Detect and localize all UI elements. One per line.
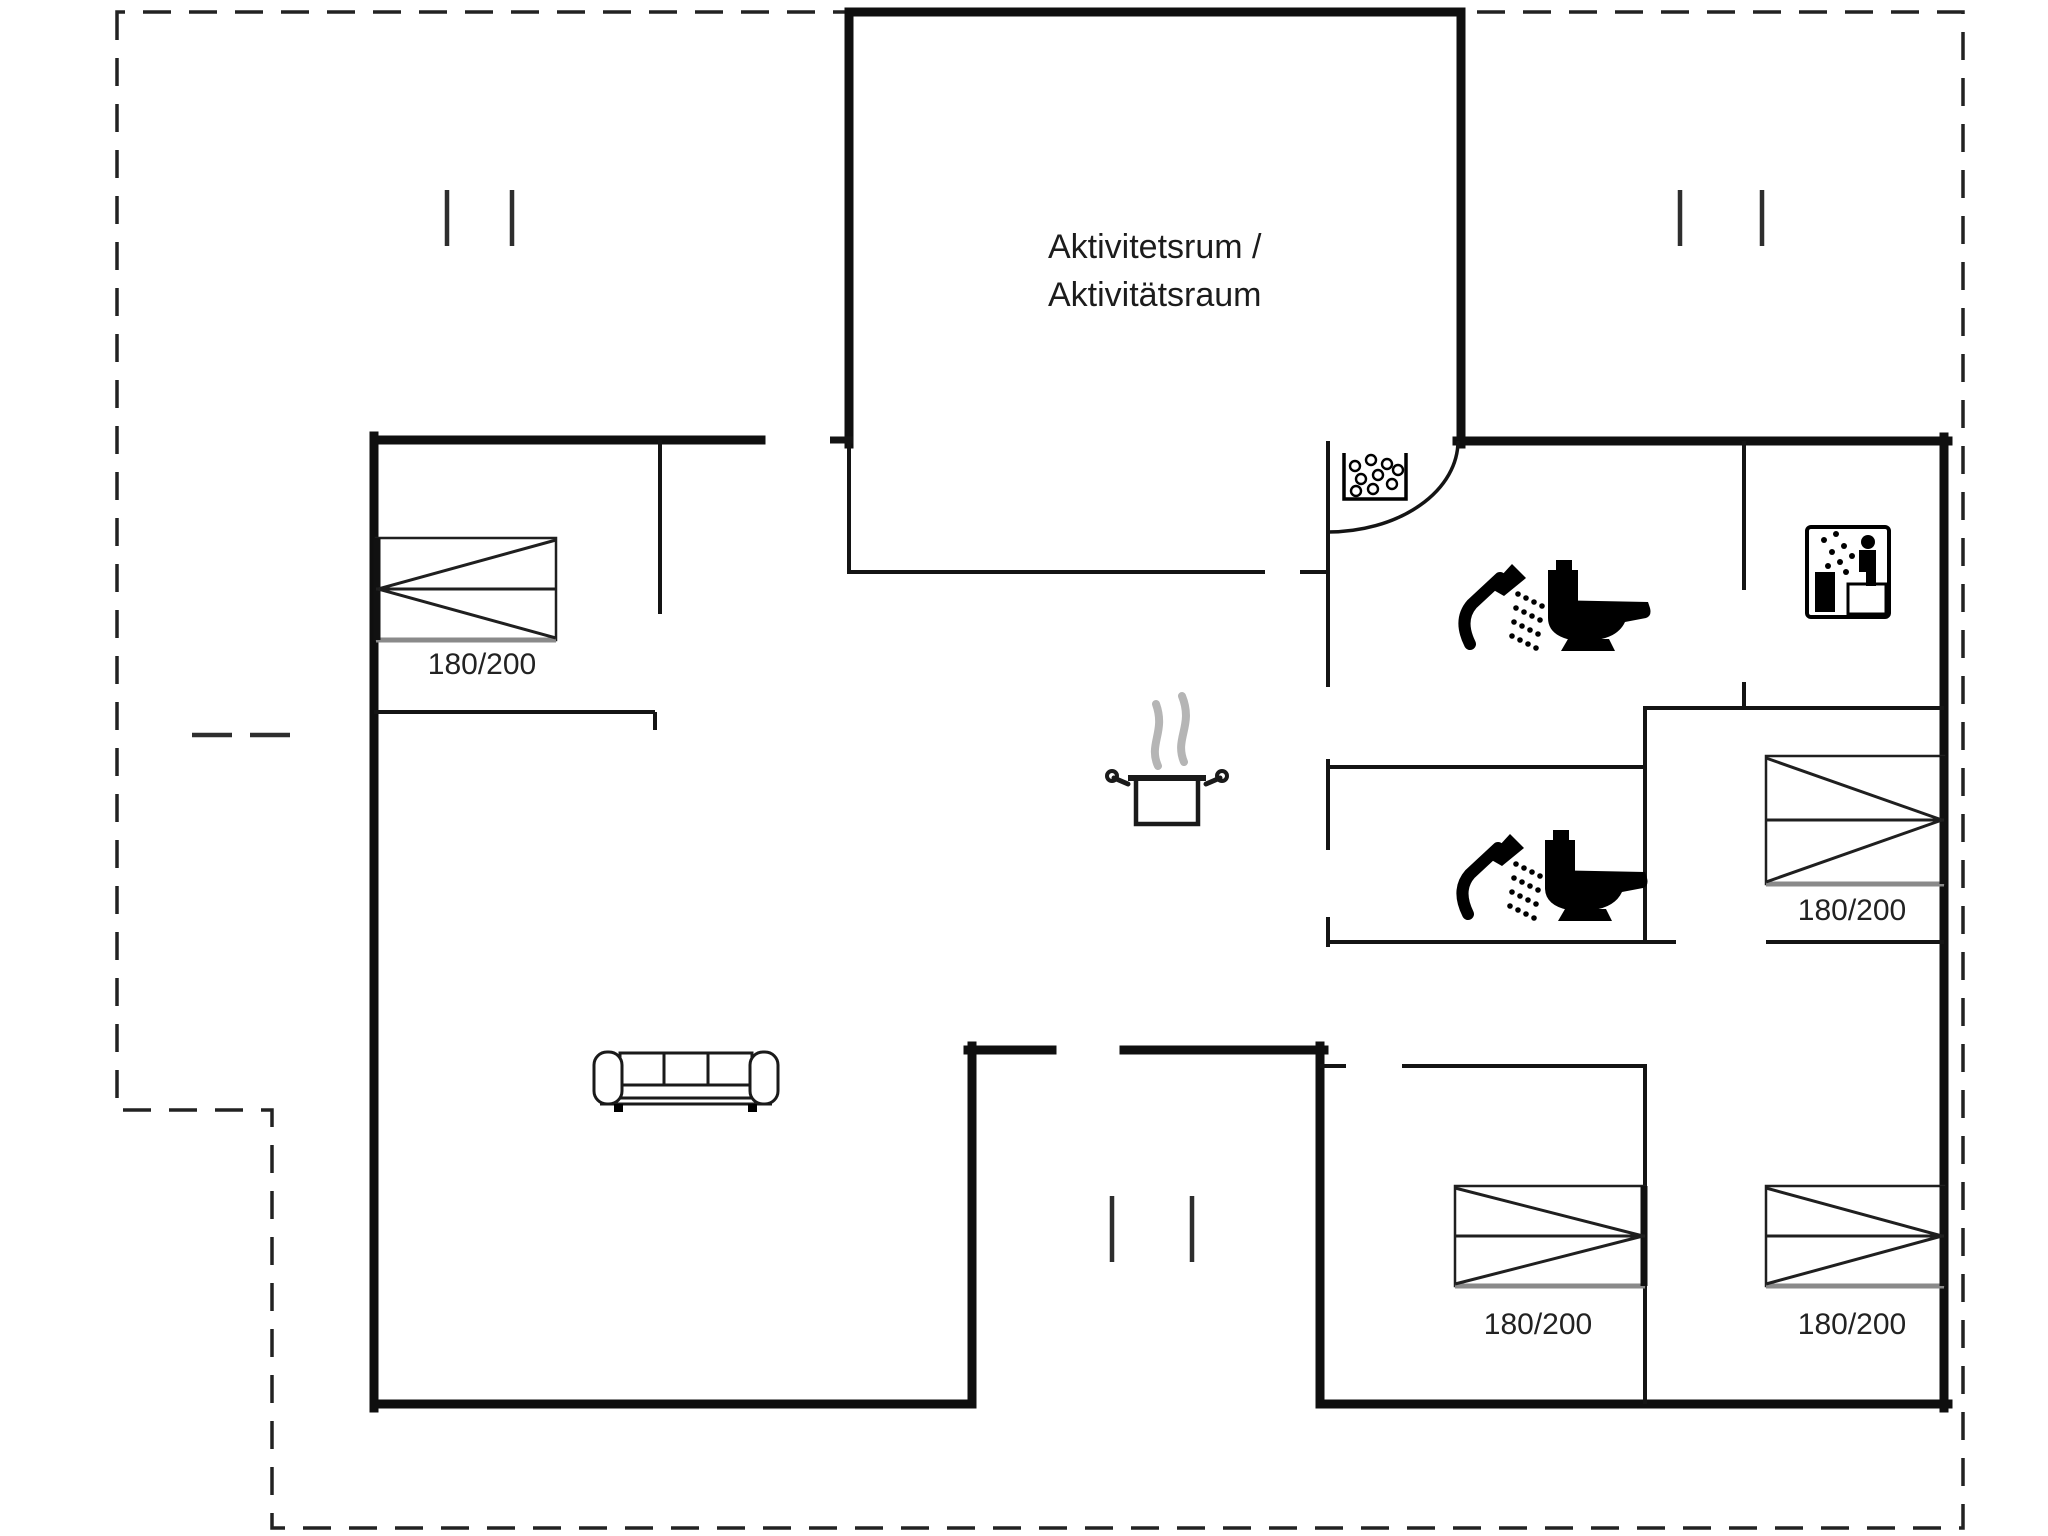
toilet-icon — [1548, 560, 1651, 651]
bed-bottom-right: 180/200 — [1766, 1186, 1944, 1341]
window-ticks — [192, 190, 1762, 1262]
toilet-icon — [1545, 830, 1648, 921]
activity-room-label-line1: Aktivitetsrum / — [1048, 228, 1262, 266]
bed-size-label: 180/200 — [428, 648, 536, 681]
bed-bottom-center: 180/200 — [1455, 1186, 1645, 1341]
bed-top-left: 180/200 — [376, 538, 556, 681]
shower-icon — [1464, 564, 1544, 651]
sauna-icon — [1807, 527, 1889, 617]
bathroom2-icons — [1462, 830, 1647, 921]
shower-icon — [1462, 834, 1542, 921]
terrace-boundary — [117, 12, 1963, 1528]
bed-size-label: 180/200 — [1798, 894, 1906, 927]
bed-middle-right: 180/200 — [1766, 756, 1944, 927]
bed-size-label: 180/200 — [1484, 1308, 1592, 1341]
floor-plan-page: Aktivitetsrum / Aktivitätsraum 180/200 1… — [0, 0, 2048, 1536]
activity-room-label: Aktivitetsrum / Aktivitätsraum — [1048, 228, 1262, 314]
whirlpool-icon — [1344, 453, 1406, 499]
sofa-icon — [594, 1052, 778, 1112]
cooking-pot-icon — [1107, 696, 1227, 824]
corner-bathtub-arc — [1328, 441, 1458, 532]
floor-plan: Aktivitetsrum / Aktivitätsraum 180/200 1… — [0, 0, 2048, 1536]
bathroom1-icons — [1464, 560, 1650, 651]
bed-size-label: 180/200 — [1798, 1308, 1906, 1341]
activity-room-label-line2: Aktivitätsraum — [1048, 276, 1262, 314]
interior-walls — [374, 440, 1944, 1404]
